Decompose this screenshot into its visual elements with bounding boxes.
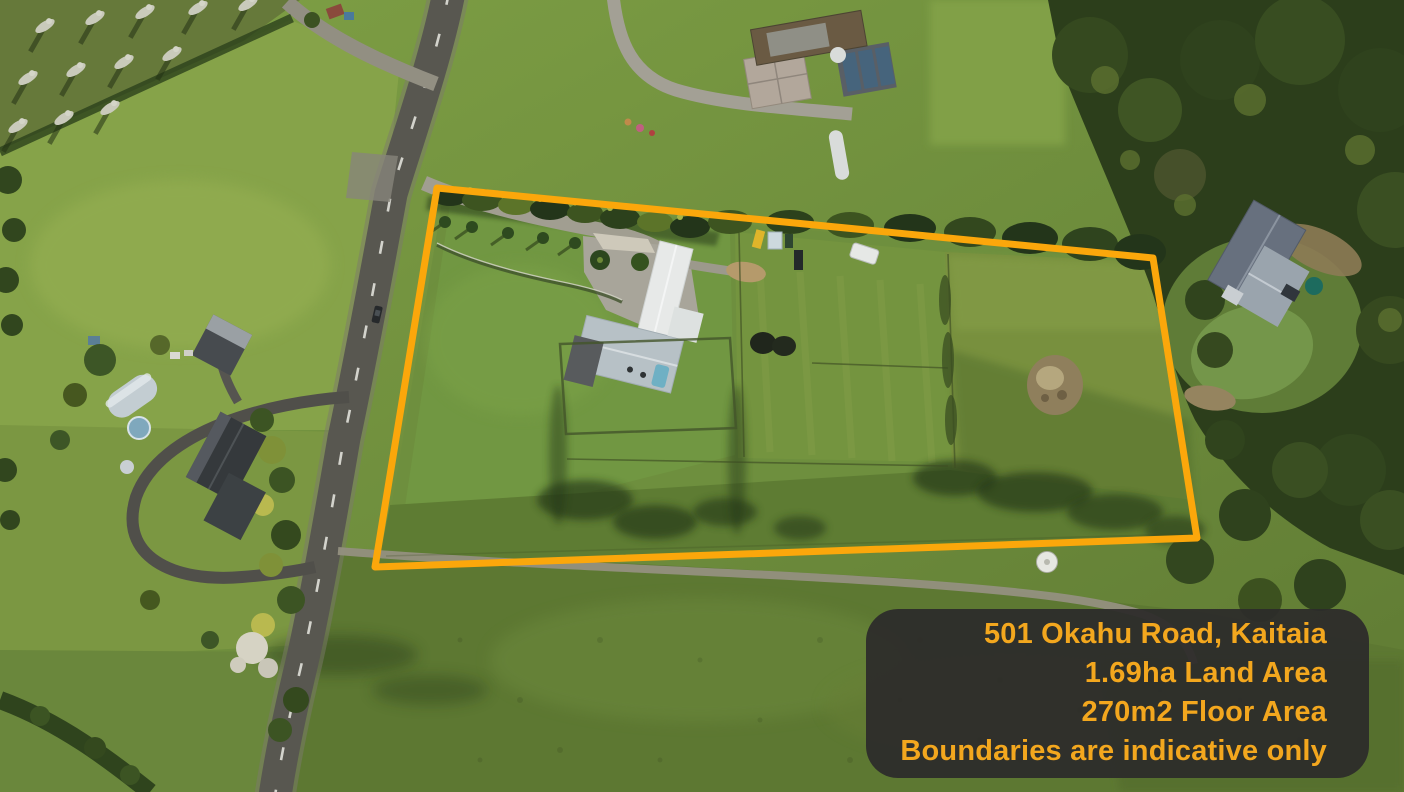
aerial-photo-stage: 501 Okahu Road, Kaitaia 1.69ha Land Area… bbox=[0, 0, 1404, 792]
water-tank-small bbox=[830, 47, 846, 63]
pond-right bbox=[772, 336, 796, 356]
rock-mound bbox=[1027, 355, 1083, 415]
blue-tank bbox=[128, 417, 150, 439]
property-floor-area: 270m2 Floor Area bbox=[1081, 693, 1327, 732]
small-dome bbox=[120, 460, 134, 474]
shed-white bbox=[768, 232, 782, 249]
round-water-tank bbox=[1037, 552, 1058, 573]
property-land-area: 1.69ha Land Area bbox=[1085, 654, 1327, 693]
property-info-card: 501 Okahu Road, Kaitaia 1.69ha Land Area… bbox=[866, 609, 1369, 778]
pond-left bbox=[750, 332, 776, 354]
boundary-disclaimer: Boundaries are indicative only bbox=[900, 732, 1327, 771]
black-container bbox=[794, 250, 803, 270]
green-tank bbox=[785, 234, 793, 248]
intersection-pullout bbox=[346, 152, 398, 202]
property-address: 501 Okahu Road, Kaitaia bbox=[984, 615, 1327, 654]
teal-tree bbox=[1305, 277, 1323, 295]
